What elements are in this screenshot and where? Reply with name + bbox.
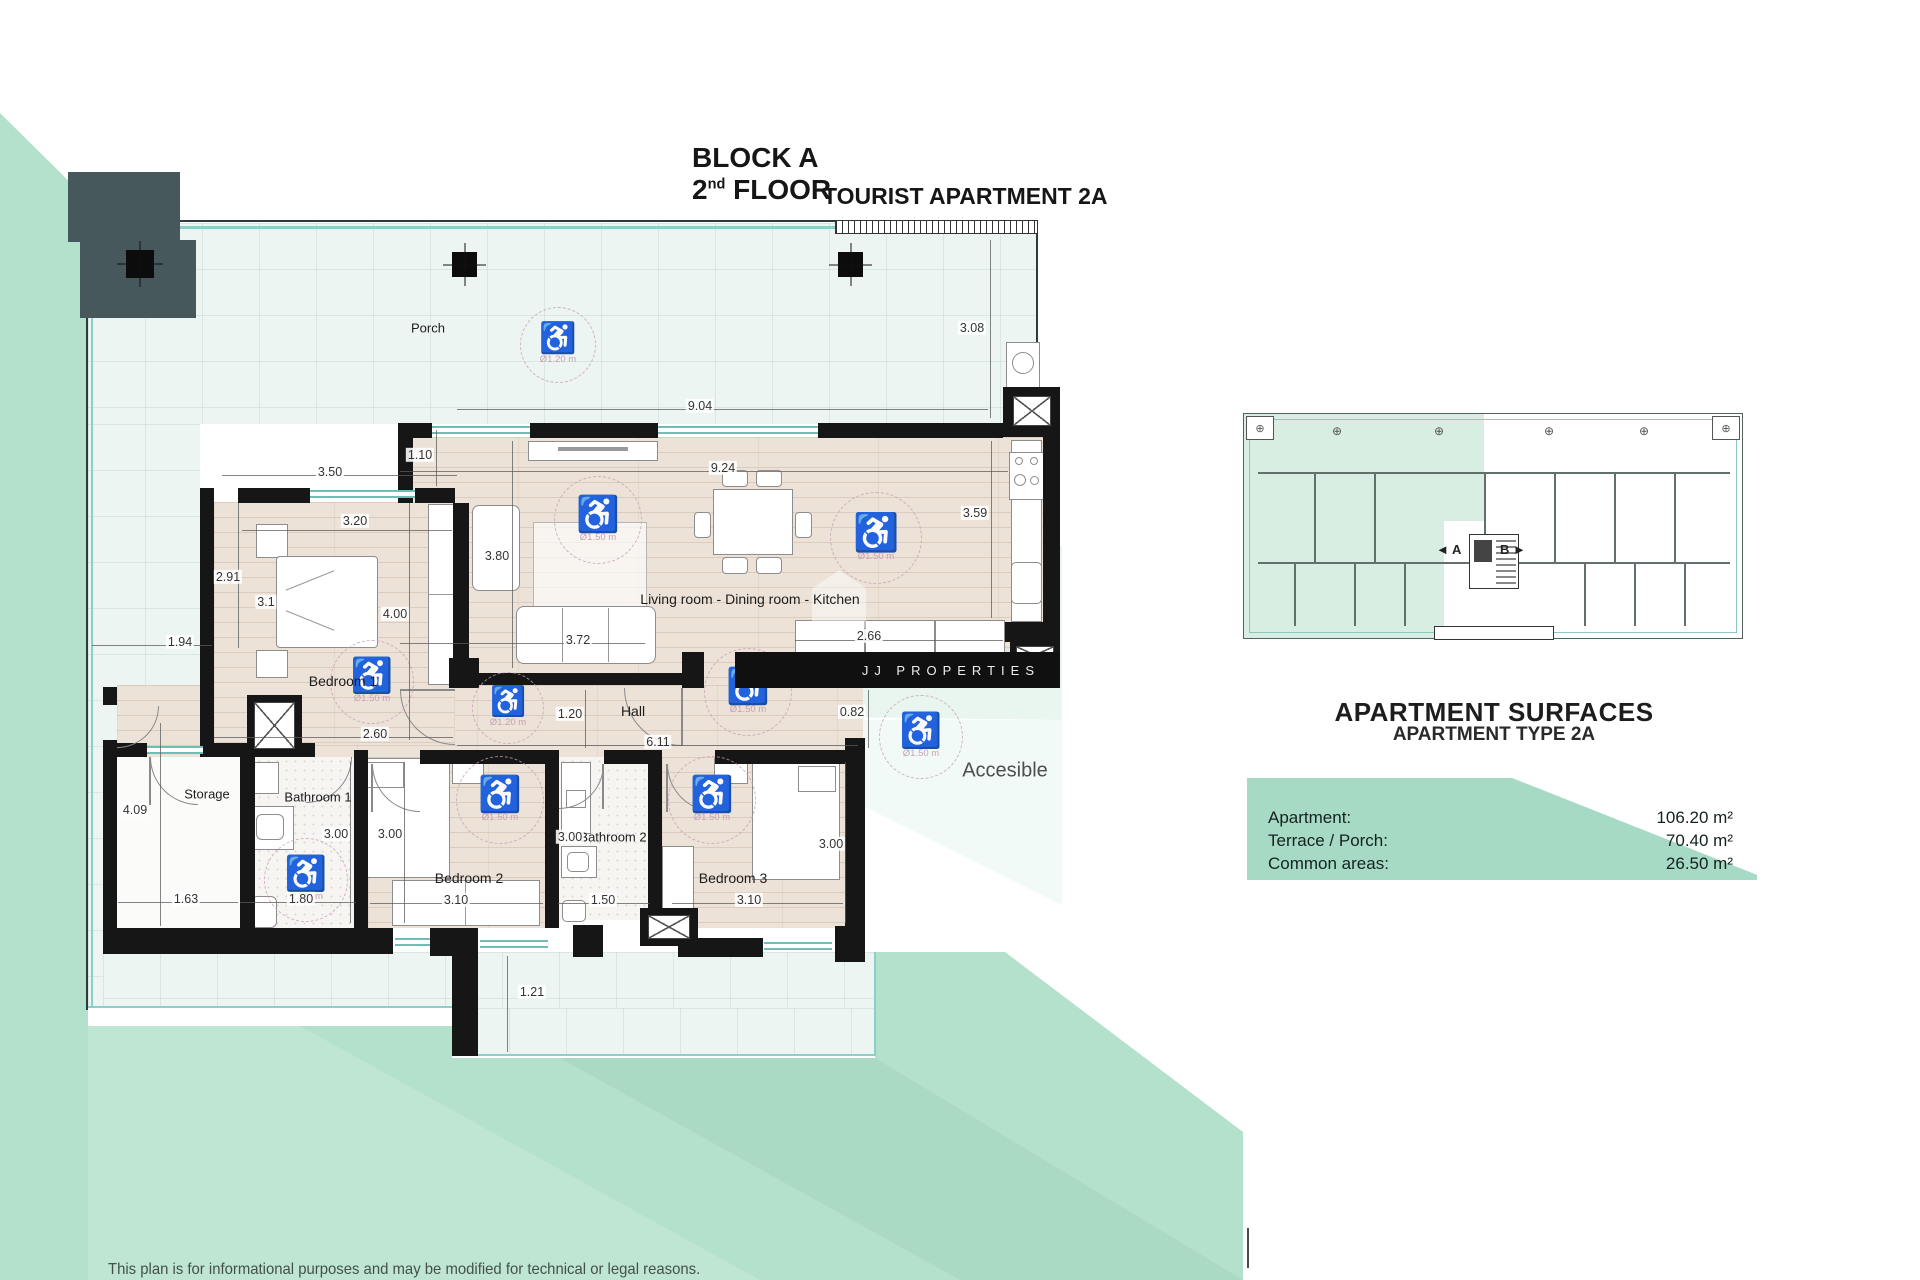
accessibility-circle: ♿Ø1.20 m bbox=[520, 307, 596, 383]
dimension-label: 1.10 bbox=[406, 448, 434, 462]
dimension-label: 1.63 bbox=[172, 892, 200, 906]
wheelchair-icon: ♿ bbox=[539, 324, 576, 354]
porch-sink-basin bbox=[1012, 352, 1034, 374]
wall bbox=[103, 757, 117, 928]
dimension-label: 2.91 bbox=[214, 570, 242, 584]
porch-railing-hatch bbox=[835, 220, 1038, 234]
accessibility-diameter-label: Ø1.50 m bbox=[730, 704, 766, 715]
wall bbox=[238, 488, 310, 503]
wheelchair-icon: ♿ bbox=[900, 714, 942, 748]
dimension-label: 3.00 bbox=[817, 837, 845, 851]
accessibility-circle: ♿Ø1.50 m bbox=[879, 695, 963, 779]
overview-entrance-bump bbox=[1434, 626, 1554, 640]
floor-number: 2 bbox=[692, 174, 708, 205]
dimension-label: 0.82 bbox=[838, 705, 866, 719]
washbasin bbox=[256, 814, 284, 840]
wall bbox=[818, 423, 1003, 438]
title-floor: 2nd FLOOR bbox=[692, 174, 831, 206]
dimension-label: 3.1 bbox=[255, 595, 276, 609]
dimension-line bbox=[214, 737, 453, 738]
dining-chair bbox=[756, 470, 782, 487]
accessibility-diameter-label: Ø1.50 m bbox=[858, 551, 894, 562]
dimension-label: 3.80 bbox=[483, 549, 511, 563]
dimension-label: 3.59 bbox=[961, 506, 989, 520]
terrace-right-edge bbox=[874, 952, 876, 1056]
tv bbox=[558, 447, 628, 451]
dimension-label: 9.04 bbox=[686, 399, 714, 413]
dining-chair bbox=[795, 512, 812, 538]
wall bbox=[678, 938, 763, 957]
accessibility-diameter-label: Ø1.50 m bbox=[580, 532, 616, 543]
stair-column bbox=[126, 250, 154, 278]
stove-burner bbox=[1015, 457, 1023, 465]
porch-column-2 bbox=[838, 252, 863, 277]
bed bbox=[276, 556, 378, 648]
dimension-line bbox=[242, 530, 452, 531]
wall bbox=[449, 658, 479, 688]
dimension-label: 4.00 bbox=[381, 607, 409, 621]
dimension-line bbox=[404, 762, 405, 923]
shelf bbox=[256, 650, 288, 678]
wall bbox=[103, 687, 117, 705]
accessibility-circle: ♿Ø1.50 m bbox=[668, 756, 756, 844]
room-label: Bathroom 2 bbox=[579, 830, 646, 845]
dimension-line bbox=[868, 690, 869, 748]
terrace-bottom-edge1 bbox=[88, 1006, 454, 1008]
dimension-line bbox=[400, 471, 1008, 472]
floor-word: FLOOR bbox=[733, 174, 831, 205]
accessibility-diameter-label: Ø1.50 m bbox=[903, 748, 939, 759]
wall bbox=[354, 750, 368, 928]
room-label: Hall bbox=[621, 703, 645, 719]
stove-burner bbox=[1030, 476, 1039, 485]
dimension-label: 3.00 bbox=[376, 827, 404, 841]
accessibility-diameter-label: Ø1.50 m bbox=[354, 693, 390, 704]
room-label: Porch bbox=[411, 321, 445, 336]
shaft-box bbox=[648, 915, 690, 939]
wheelchair-icon: ♿ bbox=[853, 514, 899, 551]
dimension-label: 1.50 bbox=[589, 893, 617, 907]
overview-column-marker: ⊕ bbox=[1544, 424, 1554, 438]
dimension-label: 3.72 bbox=[564, 633, 592, 647]
wall bbox=[530, 423, 658, 438]
dimension-label: 3.50 bbox=[316, 465, 344, 479]
title-apartment: TOURIST APARTMENT 2A bbox=[823, 183, 1108, 210]
wall bbox=[452, 952, 478, 1056]
window bbox=[658, 426, 818, 434]
dimension-line bbox=[512, 441, 513, 668]
wall bbox=[604, 750, 648, 764]
stair-core-upper bbox=[68, 172, 180, 242]
dimension-label: 3.10 bbox=[442, 893, 470, 907]
dimension-line bbox=[409, 503, 410, 740]
surfaces-row-value: 70.40 m² bbox=[1500, 831, 1733, 851]
dimension-line bbox=[350, 762, 351, 923]
overview-corner-flag: ⊕ bbox=[1712, 416, 1740, 440]
overview-glazing-border bbox=[1249, 419, 1737, 633]
floor-plan-sheet: BLOCK A 2nd FLOOR TOURIST APARTMENT 2A bbox=[0, 0, 1920, 1280]
window bbox=[432, 426, 530, 434]
porch-right-edge bbox=[1036, 220, 1038, 347]
room-label: Bathroom 1 bbox=[284, 790, 351, 805]
wall bbox=[415, 488, 455, 503]
terrace-left-glazing bbox=[91, 226, 93, 1008]
dimension-line bbox=[400, 643, 645, 644]
wall bbox=[573, 925, 603, 957]
bathroom-cabinet bbox=[251, 762, 279, 794]
window bbox=[480, 940, 548, 948]
dimension-line bbox=[991, 441, 992, 618]
dimension-label: 3.20 bbox=[341, 514, 369, 528]
wall bbox=[200, 488, 214, 757]
surfaces-row-label: Terrace / Porch: bbox=[1268, 831, 1388, 851]
room-label: Bedroom 2 bbox=[435, 870, 503, 886]
kitchen-sink bbox=[1011, 562, 1042, 604]
wall bbox=[398, 423, 432, 438]
wheelchair-icon: ♿ bbox=[690, 777, 734, 812]
dining-chair bbox=[694, 512, 711, 538]
door-leaf bbox=[371, 764, 373, 812]
door-leaf bbox=[681, 688, 683, 746]
accessibility-circle: ♿Ø1.50 m bbox=[830, 492, 922, 584]
accessibility-diameter-label: Ø1.50 m bbox=[694, 812, 730, 823]
wall bbox=[103, 928, 393, 954]
wheelchair-icon: ♿ bbox=[490, 688, 526, 717]
overview-column-marker: ⊕ bbox=[1434, 424, 1444, 438]
porch-column-1 bbox=[452, 252, 477, 277]
accessibility-circle: ♿Ø1.20 m bbox=[472, 672, 544, 744]
unit-a-arrow-icon: ◄ bbox=[1436, 542, 1449, 557]
title-block: BLOCK A bbox=[692, 142, 819, 174]
accessibility-circle: ♿Ø1.50 m bbox=[554, 476, 642, 564]
unit-b-label: B ► bbox=[1500, 542, 1526, 557]
wall bbox=[682, 652, 704, 688]
wall bbox=[453, 503, 469, 663]
wall bbox=[203, 743, 247, 757]
terrace-left-edge bbox=[86, 220, 88, 1010]
window bbox=[764, 942, 832, 950]
window bbox=[310, 490, 415, 498]
wall bbox=[648, 750, 662, 928]
dimension-line bbox=[160, 723, 161, 926]
dimension-label: 3.00 bbox=[556, 830, 584, 844]
window bbox=[395, 938, 430, 946]
dining-chair bbox=[756, 557, 782, 574]
dimension-label: 3.00 bbox=[322, 827, 350, 841]
overview-column-marker: ⊕ bbox=[1332, 424, 1342, 438]
dimension-line bbox=[795, 640, 1003, 641]
washbasin bbox=[567, 852, 589, 872]
bottom-terrace-step-floor bbox=[452, 1008, 875, 1056]
dimension-label: 3.10 bbox=[735, 893, 763, 907]
room-label: Bedroom 3 bbox=[699, 870, 767, 886]
terrace-bottom-edge2 bbox=[452, 1054, 876, 1056]
accessibility-circle: ♿Ø1.50m bbox=[264, 838, 348, 922]
dimension-line bbox=[585, 690, 586, 748]
dimension-label: 1.21 bbox=[518, 985, 546, 999]
text-cursor-artifact bbox=[1247, 1228, 1249, 1268]
stove-burner bbox=[1030, 457, 1038, 465]
room-label: Accesible bbox=[962, 760, 1048, 783]
wall bbox=[1043, 437, 1060, 624]
dimension-line bbox=[457, 409, 988, 410]
room-label: Storage bbox=[184, 787, 230, 802]
dimension-label: 1.80 bbox=[287, 892, 315, 906]
wall bbox=[1005, 622, 1060, 642]
surfaces-row-value: 106.20 m² bbox=[1500, 808, 1733, 828]
wall bbox=[835, 926, 865, 962]
dimension-line bbox=[990, 240, 991, 418]
wheelchair-icon: ♿ bbox=[576, 497, 620, 532]
accessibility-diameter-label: Ø1.50 m bbox=[482, 812, 518, 823]
dimension-label: 1.94 bbox=[166, 635, 194, 649]
building-overview-plan: ⊕ ⊕ ⊕ ⊕ ⊕ ⊕ ◄ A B ► bbox=[1243, 413, 1743, 639]
wheelchair-icon: ♿ bbox=[478, 777, 522, 812]
surfaces-subtitle: APARTMENT TYPE 2A bbox=[1194, 724, 1794, 746]
dimension-label: 4.09 bbox=[121, 803, 149, 817]
overview-elevator bbox=[1474, 540, 1492, 562]
tv-sideboard bbox=[528, 441, 658, 461]
disclaimer-text: This plan is for informational purposes … bbox=[108, 1261, 700, 1279]
dimension-line bbox=[507, 956, 508, 1052]
wall bbox=[845, 738, 865, 930]
unit-b-arrow-icon: ► bbox=[1513, 542, 1526, 557]
surfaces-row-label: Apartment: bbox=[1268, 808, 1351, 828]
dimension-label: 2.66 bbox=[855, 629, 883, 643]
dimension-line bbox=[436, 430, 437, 486]
floor-ordinal: nd bbox=[708, 177, 726, 193]
dining-table bbox=[713, 489, 793, 555]
dining-chair bbox=[722, 557, 748, 574]
shaft-box bbox=[254, 702, 295, 749]
surfaces-row-value: 26.50 m² bbox=[1500, 854, 1733, 874]
window bbox=[147, 746, 203, 754]
pillow bbox=[798, 766, 836, 792]
overview-corner-flag: ⊕ bbox=[1246, 416, 1274, 440]
bottom-terrace-floor bbox=[103, 952, 875, 1008]
room-label: Bedroom 1 bbox=[309, 673, 377, 689]
wheelchair-icon: ♿ bbox=[285, 857, 327, 891]
stove-burner bbox=[1014, 474, 1026, 486]
door-leaf bbox=[602, 764, 604, 809]
accessibility-diameter-label: Ø1.20 m bbox=[540, 354, 576, 365]
shaft-box bbox=[1013, 396, 1051, 426]
dimension-label: 2.60 bbox=[361, 727, 389, 741]
surfaces-row-label: Common areas: bbox=[1268, 854, 1389, 874]
wardrobe-divider bbox=[428, 594, 454, 595]
unit-a-label: ◄ A bbox=[1436, 542, 1461, 557]
dimension-label: 9.24 bbox=[709, 461, 737, 475]
overview-column-marker: ⊕ bbox=[1639, 424, 1649, 438]
accessibility-diameter-label: Ø1.20 m bbox=[490, 717, 526, 728]
brand-watermark: JJ PROPERTIES bbox=[862, 663, 1040, 678]
dimension-label: 6.11 bbox=[644, 735, 671, 749]
sofa-cushion-line bbox=[608, 608, 609, 662]
entry-wall-watermark-band: JJ PROPERTIES bbox=[735, 652, 1060, 688]
room-label: Living room - Dining room - Kitchen bbox=[640, 591, 859, 607]
dimension-label: 1.20 bbox=[556, 707, 584, 721]
door-leaf bbox=[149, 757, 151, 805]
dimension-label: 3.08 bbox=[958, 321, 986, 335]
accessibility-circle: ♿Ø1.50 m bbox=[456, 756, 544, 844]
